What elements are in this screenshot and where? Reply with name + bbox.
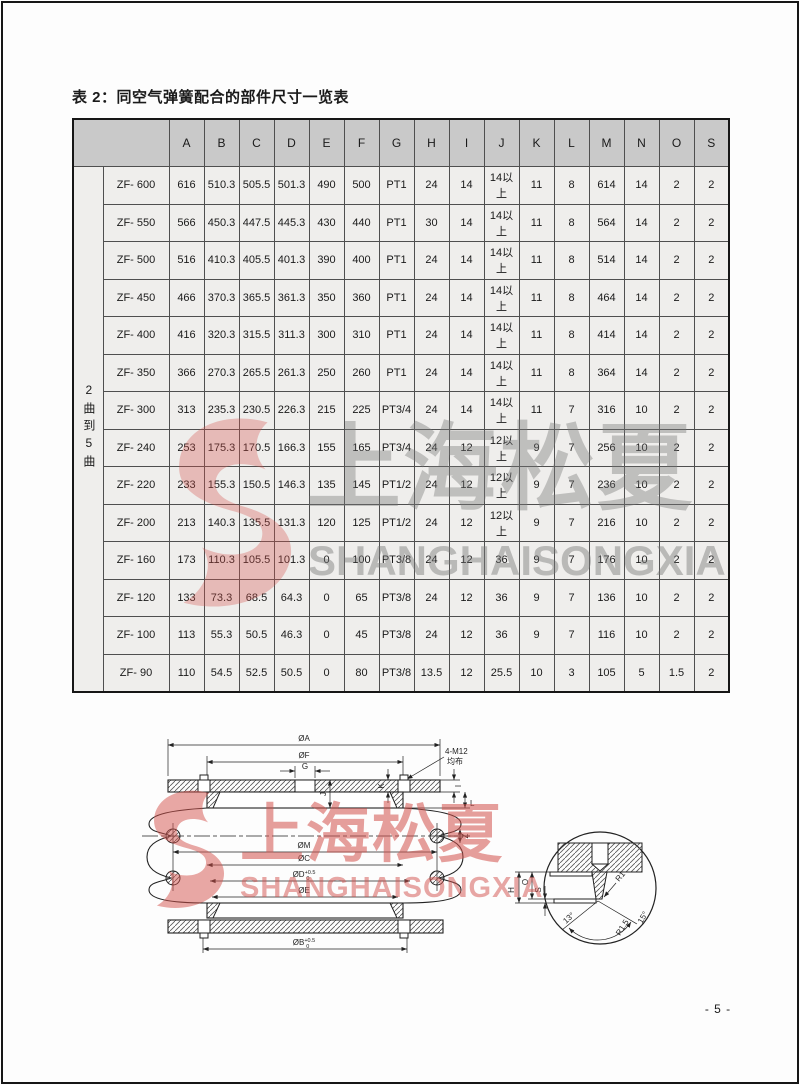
dim-label-l: L <box>470 799 475 808</box>
dim-label-dia-m: ØM <box>298 841 311 850</box>
data-cell: PT3/8 <box>379 654 414 692</box>
dim-label-s: S <box>534 887 543 892</box>
data-cell: 320.3 <box>204 317 239 355</box>
data-cell: 135 <box>309 467 344 505</box>
data-cell: 14以上 <box>484 204 519 242</box>
data-cell: PT3/4 <box>379 429 414 467</box>
data-cell: 390 <box>309 242 344 280</box>
data-cell: 14 <box>624 242 659 280</box>
model-cell: ZF- 550 <box>103 204 169 242</box>
table-row: 2曲到5曲ZF- 600616510.3505.5501.3490500PT12… <box>73 167 729 205</box>
data-cell: 14以上 <box>484 279 519 317</box>
data-cell: 52.5 <box>239 654 274 692</box>
table-row: ZF- 500516410.3405.5401.3390400PT1241414… <box>73 242 729 280</box>
data-cell: 225 <box>344 392 379 430</box>
data-cell: 175.3 <box>204 429 239 467</box>
data-cell: 10 <box>624 504 659 542</box>
data-cell: 464 <box>589 279 624 317</box>
data-cell: 101.3 <box>274 542 309 580</box>
data-cell: 24 <box>414 579 449 617</box>
data-cell: 14 <box>624 354 659 392</box>
data-cell: 2 <box>694 542 729 580</box>
data-cell: 9 <box>519 617 554 655</box>
data-cell: 12 <box>449 579 484 617</box>
data-cell: 173 <box>169 542 204 580</box>
data-cell: 25.5 <box>484 654 519 692</box>
data-cell: 230.5 <box>239 392 274 430</box>
data-cell: 45 <box>344 617 379 655</box>
data-cell: 261.3 <box>274 354 309 392</box>
data-cell: PT1 <box>379 354 414 392</box>
data-cell: 12 <box>449 429 484 467</box>
model-cell: ZF- 500 <box>103 242 169 280</box>
data-cell: 14 <box>449 167 484 205</box>
table-row: ZF- 200213140.3135.5131.3120125PT1/22412… <box>73 504 729 542</box>
data-cell: 155.3 <box>204 467 239 505</box>
data-cell: 24 <box>414 392 449 430</box>
data-cell: 365.5 <box>239 279 274 317</box>
data-cell: 8 <box>554 167 589 205</box>
model-cell: ZF- 220 <box>103 467 169 505</box>
data-cell: 170.5 <box>239 429 274 467</box>
data-cell: 360 <box>344 279 379 317</box>
data-cell: 11 <box>519 354 554 392</box>
data-cell: 10 <box>624 429 659 467</box>
data-cell: 226.3 <box>274 392 309 430</box>
data-cell: PT1 <box>379 204 414 242</box>
column-header: N <box>624 119 659 167</box>
dim-label-k: K <box>377 783 386 789</box>
data-cell: 12 <box>449 504 484 542</box>
data-cell: 36 <box>484 579 519 617</box>
table-row: ZF- 160173110.3105.5101.30100PT3/8241236… <box>73 542 729 580</box>
data-cell: 315.5 <box>239 317 274 355</box>
data-cell: 55.3 <box>204 617 239 655</box>
data-cell: 50.5 <box>239 617 274 655</box>
data-cell: 136 <box>589 579 624 617</box>
model-cell: ZF- 450 <box>103 279 169 317</box>
data-cell: 110.3 <box>204 542 239 580</box>
row-group-label-text: 2曲到5曲 <box>82 383 95 472</box>
data-cell: 316 <box>589 392 624 430</box>
data-cell: 7 <box>554 392 589 430</box>
data-cell: 116 <box>589 617 624 655</box>
table-row: ZF- 10011355.350.546.3045PT3/82412369711… <box>73 617 729 655</box>
data-cell: 10 <box>624 542 659 580</box>
data-cell: 364 <box>589 354 624 392</box>
data-cell: 12 <box>449 617 484 655</box>
data-cell: 430 <box>309 204 344 242</box>
data-cell: 10 <box>624 617 659 655</box>
data-cell: 2 <box>694 467 729 505</box>
column-header: B <box>204 119 239 167</box>
data-cell: 7 <box>554 467 589 505</box>
data-cell: 24 <box>414 279 449 317</box>
data-cell: 105.5 <box>239 542 274 580</box>
data-cell: 2 <box>659 617 694 655</box>
data-cell: 14 <box>449 242 484 280</box>
data-cell: 150.5 <box>239 467 274 505</box>
table-row: ZF- 12013373.368.564.3065PT3/82412369713… <box>73 579 729 617</box>
table-row: ZF- 400416320.3315.5311.3300310PT1241414… <box>73 317 729 355</box>
data-cell: 113 <box>169 617 204 655</box>
data-cell: 100 <box>344 542 379 580</box>
data-cell: 3 <box>554 654 589 692</box>
page-title: 表 2：同空气弹簧配合的部件尺寸一览表 <box>72 86 349 107</box>
data-cell: 2 <box>694 242 729 280</box>
data-cell: 7 <box>554 579 589 617</box>
column-header: K <box>519 119 554 167</box>
data-cell: 24 <box>414 354 449 392</box>
model-cell: ZF- 90 <box>103 654 169 692</box>
column-header: D <box>274 119 309 167</box>
table-row: ZF- 550566450.3447.5445.3430440PT1301414… <box>73 204 729 242</box>
data-cell: 145 <box>344 467 379 505</box>
dim-label-o: O <box>521 879 530 885</box>
page: 表 2：同空气弹簧配合的部件尺寸一览表 ABCDEFGHIJKLMNOS 2曲到… <box>0 0 800 1085</box>
data-cell: 1.5 <box>659 654 694 692</box>
data-cell: 24 <box>414 617 449 655</box>
data-cell: 14以上 <box>484 354 519 392</box>
data-cell: 9 <box>519 429 554 467</box>
data-cell: 0 <box>309 579 344 617</box>
data-cell: 2 <box>694 317 729 355</box>
data-cell: 8 <box>554 242 589 280</box>
dim-label-dia-c: ØC <box>298 854 310 863</box>
data-cell: 120 <box>309 504 344 542</box>
data-cell: 155 <box>309 429 344 467</box>
dim-label-dia-a: ØA <box>298 734 310 743</box>
data-cell: PT1 <box>379 242 414 280</box>
data-cell: 176 <box>589 542 624 580</box>
data-cell: 7 <box>554 429 589 467</box>
dim-label-z: Z <box>461 833 470 838</box>
dim-label-dia-d: ØD+0.50 <box>293 870 316 882</box>
data-cell: 12以上 <box>484 429 519 467</box>
column-header: J <box>484 119 519 167</box>
data-cell: 2 <box>659 167 694 205</box>
data-cell: 7 <box>554 617 589 655</box>
data-cell: 445.3 <box>274 204 309 242</box>
data-cell: 73.3 <box>204 579 239 617</box>
data-cell: 2 <box>659 204 694 242</box>
data-cell: 125 <box>344 504 379 542</box>
data-cell: 9 <box>519 504 554 542</box>
data-cell: PT1 <box>379 167 414 205</box>
model-cell: ZF- 240 <box>103 429 169 467</box>
data-cell: 500 <box>344 167 379 205</box>
dim-label-15deg: 15° <box>636 910 650 925</box>
data-cell: 36 <box>484 542 519 580</box>
data-cell: 8 <box>554 354 589 392</box>
data-cell: 8 <box>554 317 589 355</box>
data-cell: PT1 <box>379 279 414 317</box>
data-cell: 110 <box>169 654 204 692</box>
bolt-note: 4-M12 <box>445 747 468 756</box>
data-cell: 10 <box>624 467 659 505</box>
data-cell: 466 <box>169 279 204 317</box>
data-cell: 165 <box>344 429 379 467</box>
page-number: - 5 - <box>688 1002 748 1016</box>
data-cell: 24 <box>414 167 449 205</box>
data-cell: 24 <box>414 467 449 505</box>
data-cell: 2 <box>659 317 694 355</box>
dim-label-dia-f: ØF <box>298 751 309 760</box>
table-header-row: ABCDEFGHIJKLMNOS <box>73 119 729 167</box>
data-cell: 416 <box>169 317 204 355</box>
data-cell: 270.3 <box>204 354 239 392</box>
data-cell: 310 <box>344 317 379 355</box>
data-cell: 2 <box>694 654 729 692</box>
data-cell: 2 <box>694 392 729 430</box>
column-header: L <box>554 119 589 167</box>
data-cell: 24 <box>414 504 449 542</box>
data-cell: 12 <box>449 467 484 505</box>
column-header: C <box>239 119 274 167</box>
dim-label-dia-e: ØE <box>298 886 310 895</box>
data-cell: 0 <box>309 542 344 580</box>
data-cell: PT3/8 <box>379 542 414 580</box>
dim-label-h: H <box>507 887 516 893</box>
data-cell: 2 <box>694 429 729 467</box>
data-cell: PT3/8 <box>379 617 414 655</box>
column-header: S <box>694 119 729 167</box>
data-cell: 24 <box>414 429 449 467</box>
data-cell: 2 <box>694 279 729 317</box>
data-cell: 370.3 <box>204 279 239 317</box>
table-row: ZF- 450466370.3365.5361.3350360PT1241414… <box>73 279 729 317</box>
data-cell: 14 <box>624 204 659 242</box>
table-row: ZF- 350366270.3265.5261.3250260PT1241414… <box>73 354 729 392</box>
data-cell: 2 <box>659 579 694 617</box>
data-cell: 14 <box>449 392 484 430</box>
data-cell: 14以上 <box>484 392 519 430</box>
data-cell: 401.3 <box>274 242 309 280</box>
data-cell: 235.3 <box>204 392 239 430</box>
data-cell: 14 <box>449 279 484 317</box>
data-cell: 36 <box>484 617 519 655</box>
dimension-table: ABCDEFGHIJKLMNOS 2曲到5曲ZF- 600616510.3505… <box>72 118 730 693</box>
data-cell: 501.3 <box>274 167 309 205</box>
data-cell: 447.5 <box>239 204 274 242</box>
table-row: ZF- 9011054.552.550.5080PT3/813.51225.51… <box>73 654 729 692</box>
data-cell: 54.5 <box>204 654 239 692</box>
data-cell: 2 <box>694 504 729 542</box>
column-header: E <box>309 119 344 167</box>
dia-d-sub: 0 <box>306 876 309 882</box>
model-cell: ZF- 160 <box>103 542 169 580</box>
data-cell: PT3/4 <box>379 392 414 430</box>
data-cell: 46.3 <box>274 617 309 655</box>
column-header: G <box>379 119 414 167</box>
data-cell: 68.5 <box>239 579 274 617</box>
bead-detail-view: H O S R1 13° R1.5 15° <box>505 818 695 968</box>
data-cell: 10 <box>624 579 659 617</box>
data-cell: 400 <box>344 242 379 280</box>
data-cell: 313 <box>169 392 204 430</box>
data-cell: 2 <box>694 617 729 655</box>
data-cell: 213 <box>169 504 204 542</box>
data-cell: 65 <box>344 579 379 617</box>
column-header: I <box>449 119 484 167</box>
data-cell: 14 <box>624 167 659 205</box>
data-cell: 366 <box>169 354 204 392</box>
data-cell: 265.5 <box>239 354 274 392</box>
data-cell: 9 <box>519 467 554 505</box>
data-cell: 24 <box>414 542 449 580</box>
data-cell: 11 <box>519 242 554 280</box>
data-cell: 9 <box>519 579 554 617</box>
data-cell: 7 <box>554 542 589 580</box>
data-cell: 0 <box>309 617 344 655</box>
data-cell: 616 <box>169 167 204 205</box>
data-cell: 80 <box>344 654 379 692</box>
data-cell: PT3/8 <box>379 579 414 617</box>
data-cell: 105 <box>589 654 624 692</box>
data-cell: 2 <box>694 579 729 617</box>
data-cell: 236 <box>589 467 624 505</box>
data-cell: 2 <box>694 167 729 205</box>
data-cell: 215 <box>309 392 344 430</box>
data-cell: 2 <box>659 467 694 505</box>
data-cell: 614 <box>589 167 624 205</box>
data-cell: 8 <box>554 279 589 317</box>
data-cell: 9 <box>519 542 554 580</box>
data-cell: PT1/2 <box>379 504 414 542</box>
data-cell: 11 <box>519 317 554 355</box>
data-cell: 50.5 <box>274 654 309 692</box>
data-cell: 566 <box>169 204 204 242</box>
data-cell: 250 <box>309 354 344 392</box>
data-cell: 14以上 <box>484 242 519 280</box>
data-cell: PT1/2 <box>379 467 414 505</box>
data-cell: 146.3 <box>274 467 309 505</box>
data-cell: 11 <box>519 392 554 430</box>
data-cell: 256 <box>589 429 624 467</box>
data-cell: 14 <box>449 317 484 355</box>
data-cell: 11 <box>519 167 554 205</box>
data-cell: 14 <box>624 317 659 355</box>
data-cell: 505.5 <box>239 167 274 205</box>
data-cell: 14 <box>624 279 659 317</box>
model-cell: ZF- 350 <box>103 354 169 392</box>
data-cell: 410.3 <box>204 242 239 280</box>
model-cell: ZF- 120 <box>103 579 169 617</box>
model-cell: ZF- 400 <box>103 317 169 355</box>
model-cell: ZF- 100 <box>103 617 169 655</box>
data-cell: 440 <box>344 204 379 242</box>
data-cell: 14 <box>449 204 484 242</box>
table-row: ZF- 220233155.3150.5146.3135145PT1/22412… <box>73 467 729 505</box>
data-cell: 12以上 <box>484 467 519 505</box>
data-cell: 233 <box>169 467 204 505</box>
data-cell: 8 <box>554 204 589 242</box>
data-cell: 490 <box>309 167 344 205</box>
data-cell: 405.5 <box>239 242 274 280</box>
data-cell: 131.3 <box>274 504 309 542</box>
data-cell: 2 <box>659 279 694 317</box>
corner-cell <box>73 119 169 167</box>
data-cell: 133 <box>169 579 204 617</box>
model-cell: ZF- 600 <box>103 167 169 205</box>
column-header: H <box>414 119 449 167</box>
data-cell: 7 <box>554 504 589 542</box>
data-cell: 0 <box>309 654 344 692</box>
data-cell: 516 <box>169 242 204 280</box>
air-spring-cross-section: ØA ØF G 4-M12 均布 J K <box>140 726 485 976</box>
model-cell: ZF- 200 <box>103 504 169 542</box>
data-cell: 24 <box>414 317 449 355</box>
data-cell: 5 <box>624 654 659 692</box>
data-cell: 2 <box>694 354 729 392</box>
dim-label-r1-5: R1.5 <box>614 917 631 937</box>
dim-label-dia-b: ØB+0.50 <box>293 938 315 950</box>
table-row: ZF- 300313235.3230.5226.3215225PT3/42414… <box>73 392 729 430</box>
dim-label-g: G <box>302 762 308 771</box>
data-cell: 12以上 <box>484 504 519 542</box>
table-row: ZF- 240253175.3170.5166.3155165PT3/42412… <box>73 429 729 467</box>
column-header: O <box>659 119 694 167</box>
data-cell: 260 <box>344 354 379 392</box>
data-cell: 64.3 <box>274 579 309 617</box>
data-cell: 564 <box>589 204 624 242</box>
data-cell: 14以上 <box>484 317 519 355</box>
data-cell: 311.3 <box>274 317 309 355</box>
data-cell: 2 <box>659 504 694 542</box>
model-cell: ZF- 300 <box>103 392 169 430</box>
data-cell: 2 <box>659 429 694 467</box>
data-cell: 14 <box>449 354 484 392</box>
data-cell: 2 <box>659 354 694 392</box>
data-cell: 514 <box>589 242 624 280</box>
dim-label-13deg: 13° <box>561 911 576 926</box>
bolt-note-2: 均布 <box>447 756 463 766</box>
data-cell: 450.3 <box>204 204 239 242</box>
data-cell: 12 <box>449 654 484 692</box>
data-cell: 2 <box>659 542 694 580</box>
dia-b-sub: 0 <box>306 944 309 950</box>
data-cell: PT1 <box>379 317 414 355</box>
data-cell: 12 <box>449 542 484 580</box>
data-cell: 350 <box>309 279 344 317</box>
data-cell: 10 <box>519 654 554 692</box>
data-cell: 414 <box>589 317 624 355</box>
table-body: 2曲到5曲ZF- 600616510.3505.5501.3490500PT12… <box>73 167 729 693</box>
data-cell: 135.5 <box>239 504 274 542</box>
data-cell: 24 <box>414 242 449 280</box>
data-cell: 2 <box>659 242 694 280</box>
data-cell: 30 <box>414 204 449 242</box>
data-cell: 300 <box>309 317 344 355</box>
dia-d-base: ØD <box>293 870 305 879</box>
data-cell: 14以上 <box>484 167 519 205</box>
data-cell: 361.3 <box>274 279 309 317</box>
data-cell: 166.3 <box>274 429 309 467</box>
row-group-label: 2曲到5曲 <box>73 167 103 693</box>
data-cell: 216 <box>589 504 624 542</box>
data-cell: 11 <box>519 279 554 317</box>
data-cell: 11 <box>519 204 554 242</box>
data-cell: 2 <box>694 204 729 242</box>
data-cell: 13.5 <box>414 654 449 692</box>
data-cell: 2 <box>659 392 694 430</box>
column-header: F <box>344 119 379 167</box>
column-header: A <box>169 119 204 167</box>
data-cell: 253 <box>169 429 204 467</box>
column-header: M <box>589 119 624 167</box>
data-cell: 510.3 <box>204 167 239 205</box>
dia-b-base: ØB <box>293 938 305 947</box>
